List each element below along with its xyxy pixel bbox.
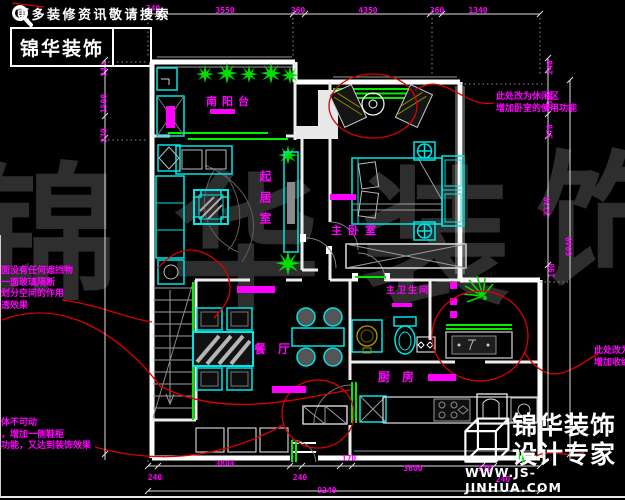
footer-website-link[interactable]: WWW.JS-JINHUA.COM: [465, 465, 625, 495]
dim-bottom-3: 170: [332, 454, 366, 463]
entry-and-cabinets: [196, 406, 347, 452]
bottom-edge-line: [0, 496, 625, 498]
brand-name: 锦华装饰: [12, 34, 112, 61]
dim-right-0: 240: [546, 53, 555, 83]
marker-bar: [428, 374, 456, 381]
dim-left-2: 370: [100, 121, 109, 151]
header-tagline: 更多装修资讯敬请搜索: [10, 4, 171, 23]
note-right-edge: 此处改为 增加收纳: [594, 346, 625, 369]
note-line: 起划分空间的作用: [0, 289, 73, 301]
dim-bottom-4: 3600: [396, 464, 430, 473]
dim-right-4: 190: [548, 256, 557, 286]
bathroom-fixtures: [352, 317, 435, 354]
dim-top-3: 4350: [351, 6, 385, 15]
room-label-balcony: 南阳台: [206, 93, 254, 109]
label-underline: [210, 109, 235, 114]
dim-left-1: 1500: [100, 89, 109, 119]
note-line: 加一面玻璃隔断: [0, 278, 73, 290]
cad-floorplan-screenshot: 锦 华 装 饰: [0, 0, 625, 500]
marker-bar: [272, 386, 306, 393]
bedroom-furniture: [346, 142, 466, 268]
dim-top-2: 360: [281, 6, 315, 15]
note-line: 前面没有任何遮挡物: [0, 266, 73, 278]
note-shoe-cabinet: 墙体不可动 式，增加一侧鞋柜 用功能，又达到装饰效果: [0, 418, 91, 453]
header-logo: 更多装修资讯敬请搜索 锦华装饰: [10, 4, 171, 67]
note-line: 此处改为: [594, 346, 625, 358]
note-line: 墙体不可动: [0, 418, 91, 430]
divider: [112, 29, 114, 65]
note-line: 此处改为休闲区: [496, 92, 577, 104]
room-label-kitchen: 厨房: [378, 368, 426, 385]
room-label-living: 起居室: [257, 170, 274, 233]
dim-right-5: 6040: [565, 232, 574, 262]
room-label-bathroom: 主卫生间: [386, 283, 430, 296]
door-swing-arcs: [292, 222, 385, 462]
dim-right-2: 370: [546, 117, 555, 147]
balcony-fixtures: [157, 68, 184, 136]
note-line: 增加收纳: [594, 358, 625, 370]
dim-right-3: 3230: [543, 192, 552, 222]
dim-right-1: 1500: [546, 86, 555, 116]
note-glass-partition: 前面没有任何遮挡物 加一面玻璃隔断 起划分空间的作用 通透效果: [0, 266, 73, 312]
note-line: 式，增加一侧鞋柜: [0, 430, 91, 442]
dim-top-4: 360: [420, 6, 454, 15]
marker-bar: [258, 286, 275, 292]
note-line: 增加卧室的使用功能: [496, 104, 577, 116]
note-leisure-area: 此处改为休闲区 增加卧室的使用功能: [496, 92, 577, 115]
dim-top-1: 3550: [208, 6, 242, 15]
dim-total: 9240: [310, 486, 344, 495]
staircase: [153, 286, 192, 418]
note-line: 用功能，又达到装饰效果: [0, 441, 91, 453]
brand-search-box[interactable]: 锦华装饰: [10, 27, 152, 67]
left-edge-line: [0, 235, 1, 497]
note-line: 通透效果: [0, 301, 73, 313]
dim-bottom-0: 240: [138, 473, 172, 482]
room-label-dining: 餐厅: [254, 340, 302, 357]
dim-bottom-1: 3804: [208, 459, 242, 468]
marker-bar: [330, 194, 356, 200]
dim-bottom-2: 240: [283, 473, 317, 482]
room-label-bedroom: 主卧室: [331, 222, 382, 238]
dim-top-5: 1340: [461, 6, 495, 15]
label-underline: [392, 303, 412, 307]
